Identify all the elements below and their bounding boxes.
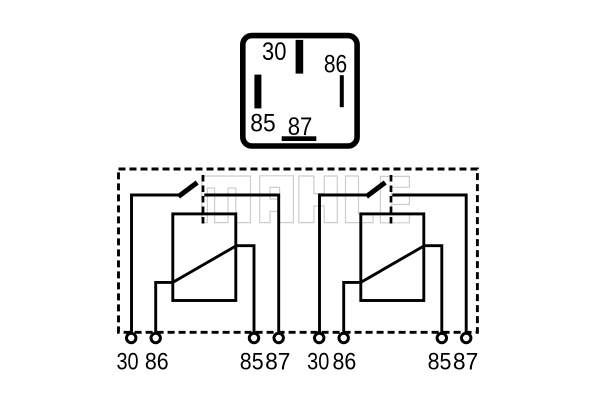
svg-text:85: 85	[428, 348, 452, 375]
svg-text:30: 30	[116, 348, 138, 375]
svg-text:30: 30	[307, 348, 329, 375]
svg-text:85: 85	[240, 348, 264, 375]
svg-text:87: 87	[453, 348, 478, 375]
svg-text:87: 87	[265, 348, 290, 375]
svg-text:86: 86	[145, 348, 169, 375]
svg-text:86: 86	[324, 50, 347, 78]
svg-text:86: 86	[333, 348, 357, 375]
svg-text:30: 30	[262, 38, 286, 66]
svg-text:85: 85	[250, 110, 275, 138]
